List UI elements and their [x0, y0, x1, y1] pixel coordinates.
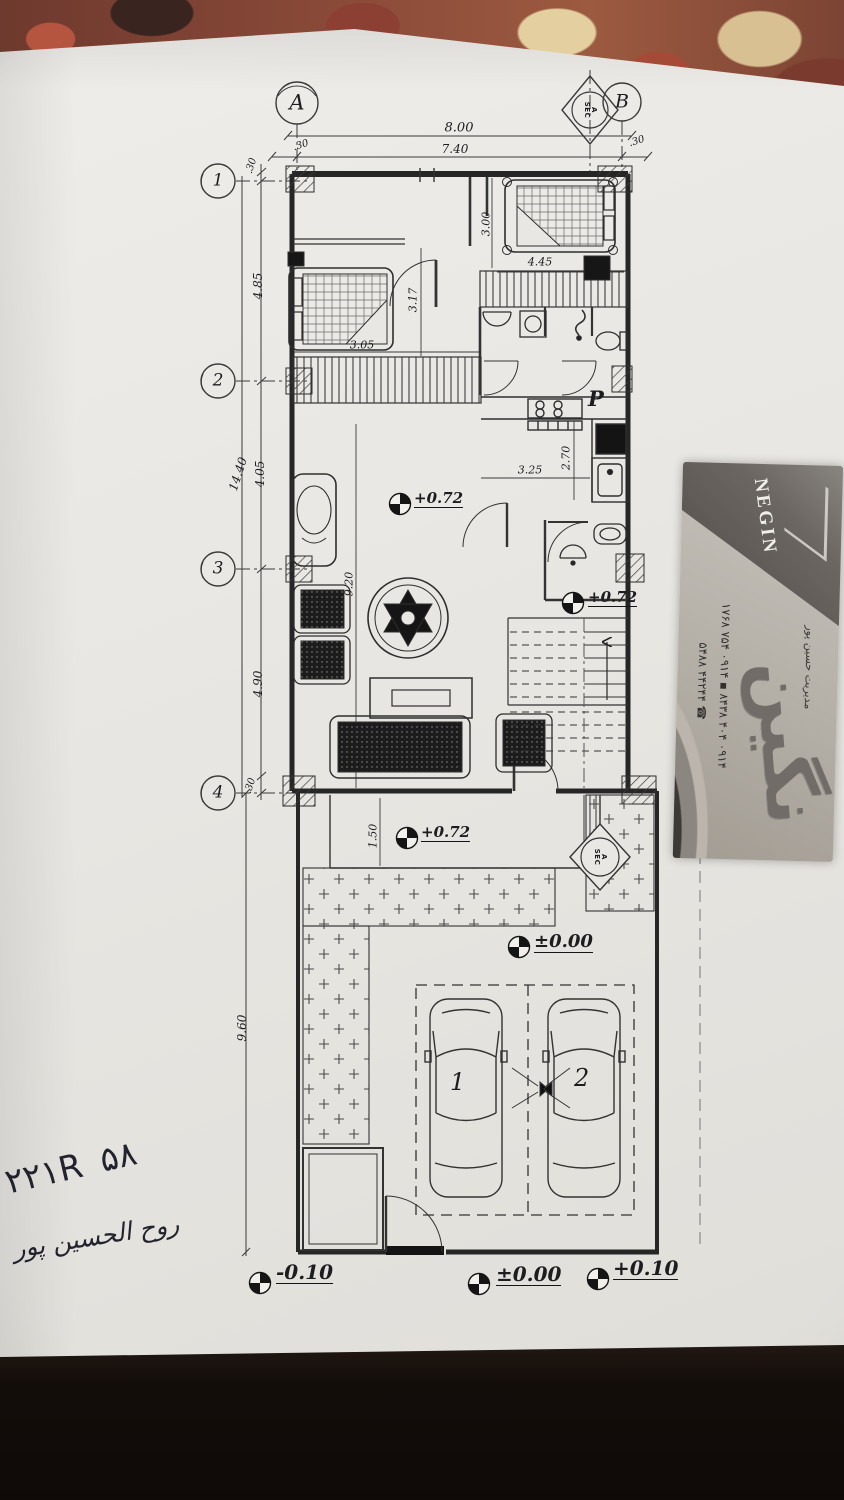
- card-swoosh-graphic: [673, 626, 769, 862]
- car-2-label: 2: [574, 1066, 589, 1090]
- car-1: [425, 999, 507, 1197]
- section-marker-yard-label: ASEC: [593, 849, 607, 865]
- grid-row-2: 2: [213, 373, 224, 390]
- dim-hall-depth: 3.17: [408, 288, 419, 313]
- sofa: [330, 716, 470, 778]
- dim-seg-3-4: 4.90: [252, 671, 264, 698]
- kitchen: [481, 397, 628, 502]
- dim-left-lower: 9.60: [236, 1015, 248, 1042]
- dim-top-total: 8.00: [445, 122, 474, 135]
- dim-kitchen-depth: 2.70: [561, 446, 572, 471]
- photo-of-floor-plan: A B 1 2 3 4 ASEC ASEC 8.00 7.40 .30 .30 …: [0, 0, 844, 1500]
- dim-seg-1-2: 4.85: [252, 273, 264, 300]
- grid-column-a: A: [289, 93, 304, 114]
- level-stairs: +0.72: [588, 590, 637, 607]
- storage-room: [303, 1148, 383, 1250]
- dim-bedroom2-depth: 3.00: [481, 212, 492, 237]
- parking: [416, 985, 634, 1215]
- business-card: NEGIN مدیریت حسین پور نگین ۰۹۱۴ ۴۰۴ ۸۴۳۸…: [681, 464, 841, 860]
- grid-row-4: 4: [213, 785, 224, 802]
- dim-living-length: 9.20: [344, 572, 355, 597]
- bed-1: [288, 252, 393, 350]
- section-marker-top: ASEC: [583, 102, 597, 118]
- grid-row-3: 3: [213, 561, 224, 578]
- grid-row-1: 1: [213, 173, 224, 190]
- coffee-table: [370, 678, 472, 718]
- round-rug: [368, 578, 448, 658]
- level-front-right: +0.10: [613, 1258, 678, 1280]
- armchair-3: [496, 714, 552, 772]
- dim-top-clear: 7.40: [442, 143, 469, 155]
- level-front-left: -0.10: [276, 1262, 333, 1284]
- car-1-label: 1: [450, 1070, 465, 1094]
- level-front-center: ±0.00: [496, 1264, 561, 1286]
- level-living: +0.72: [414, 491, 463, 508]
- dim-bedroom2-width: 4.45: [528, 257, 553, 268]
- car-annotations: [512, 1068, 570, 1108]
- bed-2: [503, 178, 618, 281]
- level-yard: ±0.00: [534, 933, 593, 953]
- living-room-furniture: [292, 474, 552, 778]
- grid-column-b: B: [615, 93, 629, 112]
- level-porch: +0.72: [421, 825, 470, 842]
- dim-closet-width: 3.05: [350, 340, 375, 351]
- kitchen-label: P: [588, 388, 604, 409]
- dim-seg-2-3: 4.05: [254, 461, 266, 488]
- dim-porch-depth: 1.50: [368, 824, 379, 849]
- armchair-2: [294, 636, 350, 684]
- bathroom-fixtures: [483, 310, 627, 350]
- dim-kitchen-width: 3.25: [518, 465, 543, 476]
